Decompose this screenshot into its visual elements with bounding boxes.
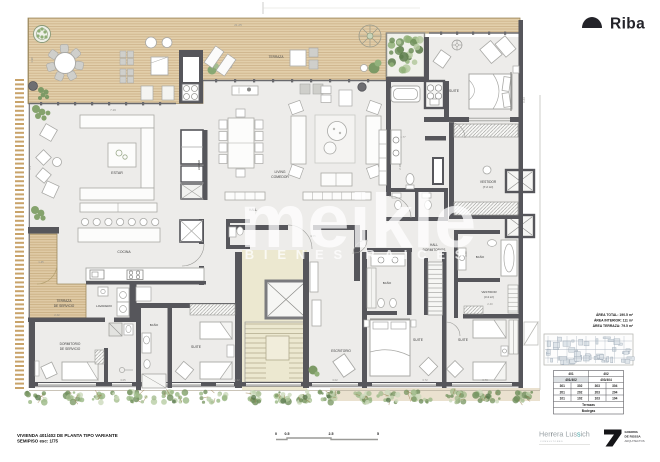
svg-text:102: 102: [577, 397, 583, 401]
svg-text:TERRAZA: TERRAZA: [57, 299, 73, 303]
svg-text:(3.4 m²): (3.4 m²): [484, 295, 494, 299]
svg-text:ÁREA INTERIOR: 111 m²: ÁREA INTERIOR: 111 m²: [594, 318, 634, 323]
svg-text:21.25: 21.25: [234, 23, 242, 27]
svg-text:403/404: 403/404: [600, 378, 612, 382]
svg-text:2.42: 2.42: [54, 313, 60, 317]
svg-text:304: 304: [612, 384, 618, 388]
svg-text:GUERRA: GUERRA: [625, 430, 639, 434]
svg-text:3.22: 3.22: [234, 378, 240, 382]
svg-text:DE SERVICIO: DE SERVICIO: [54, 304, 75, 308]
svg-text:0.5: 0.5: [285, 432, 290, 436]
svg-text:303: 303: [595, 384, 601, 388]
svg-text:101: 101: [560, 397, 566, 401]
svg-text:Herrera Lussich: Herrera Lussich: [539, 430, 590, 439]
svg-text:DE ROSSA: DE ROSSA: [625, 435, 642, 439]
svg-text:LAVADERO: LAVADERO: [96, 304, 113, 308]
svg-text:201: 201: [560, 390, 566, 394]
svg-text:202: 202: [577, 390, 583, 394]
svg-text:ESCRITORIO: ESCRITORIO: [331, 349, 351, 353]
svg-text:VIVIENDA 401/402 DE PLANTA TIP: VIVIENDA 401/402 DE PLANTA TIPO VARIANTE: [17, 433, 118, 438]
svg-text:SUITE: SUITE: [458, 338, 469, 342]
svg-text:0.63: 0.63: [522, 97, 526, 103]
svg-text:DORMITORIO: DORMITORIO: [60, 342, 81, 346]
svg-text:BAÑO: BAÑO: [476, 254, 485, 259]
svg-text:HORNO: HORNO: [197, 159, 201, 170]
svg-text:204: 204: [612, 390, 618, 394]
svg-text:SUITE: SUITE: [449, 89, 460, 93]
svg-text:302: 302: [577, 384, 583, 388]
svg-text:SUITE: SUITE: [191, 345, 202, 349]
svg-text:1.98: 1.98: [30, 57, 34, 63]
svg-text:LIVING: LIVING: [274, 170, 285, 174]
svg-text:SEMIPISO esc: 1/75: SEMIPISO esc: 1/75: [17, 439, 59, 444]
svg-text:BIENES RAICES: BIENES RAICES: [245, 247, 474, 262]
svg-text:SUITE: SUITE: [413, 338, 424, 342]
svg-text:203: 203: [595, 390, 601, 394]
svg-text:ÁREA TOTAL: 190.5 m²: ÁREA TOTAL: 190.5 m²: [596, 312, 634, 317]
svg-text:(7.2 m²): (7.2 m²): [483, 185, 494, 189]
svg-text:401: 401: [568, 372, 574, 376]
svg-text:401/402: 401/402: [565, 378, 577, 382]
svg-text:3.72: 3.72: [422, 378, 428, 382]
svg-text:BAÑO: BAÑO: [383, 280, 392, 285]
svg-text:301: 301: [560, 384, 566, 388]
svg-text:7.26: 7.26: [110, 108, 116, 112]
svg-text:COCINA: COCINA: [117, 250, 131, 254]
svg-text:BAÑO: BAÑO: [150, 322, 159, 327]
svg-text:3.05: 3.05: [120, 378, 126, 382]
svg-text:DE SERVICIO: DE SERVICIO: [60, 347, 81, 351]
svg-text:5.1: 5.1: [28, 166, 32, 170]
svg-text:1.77: 1.77: [400, 135, 406, 139]
svg-text:3.73: 3.73: [482, 378, 488, 382]
svg-text:2.40: 2.40: [487, 302, 493, 306]
svg-text:ÁREA TERRAZA: 79.5 m²: ÁREA TERRAZA: 79.5 m²: [593, 323, 634, 328]
svg-text:103: 103: [595, 397, 601, 401]
svg-text:402: 402: [603, 372, 609, 376]
svg-text:3.02: 3.02: [332, 378, 338, 382]
svg-text:TERRAZA: TERRAZA: [269, 55, 285, 59]
svg-text:0: 0: [275, 432, 277, 436]
svg-text:Terrazas: Terrazas: [582, 403, 595, 407]
svg-text:2.5: 2.5: [329, 432, 334, 436]
svg-text:1.45: 1.45: [38, 260, 44, 264]
svg-text:Bodegas: Bodegas: [582, 409, 596, 413]
svg-text:104: 104: [612, 397, 618, 401]
svg-text:Riba: Riba: [610, 15, 645, 32]
svg-text:ARQUITECTOS: ARQUITECTOS: [625, 439, 645, 443]
svg-text:VESTIDOR: VESTIDOR: [481, 290, 497, 294]
svg-text:2.18: 2.18: [398, 164, 402, 170]
svg-text:VESTIDOR: VESTIDOR: [480, 180, 497, 184]
svg-text:ESTAR: ESTAR: [111, 171, 123, 175]
svg-text:C O N S U L T O R E S: C O N S U L T O R E S: [540, 441, 563, 443]
svg-text:5: 5: [377, 432, 379, 436]
